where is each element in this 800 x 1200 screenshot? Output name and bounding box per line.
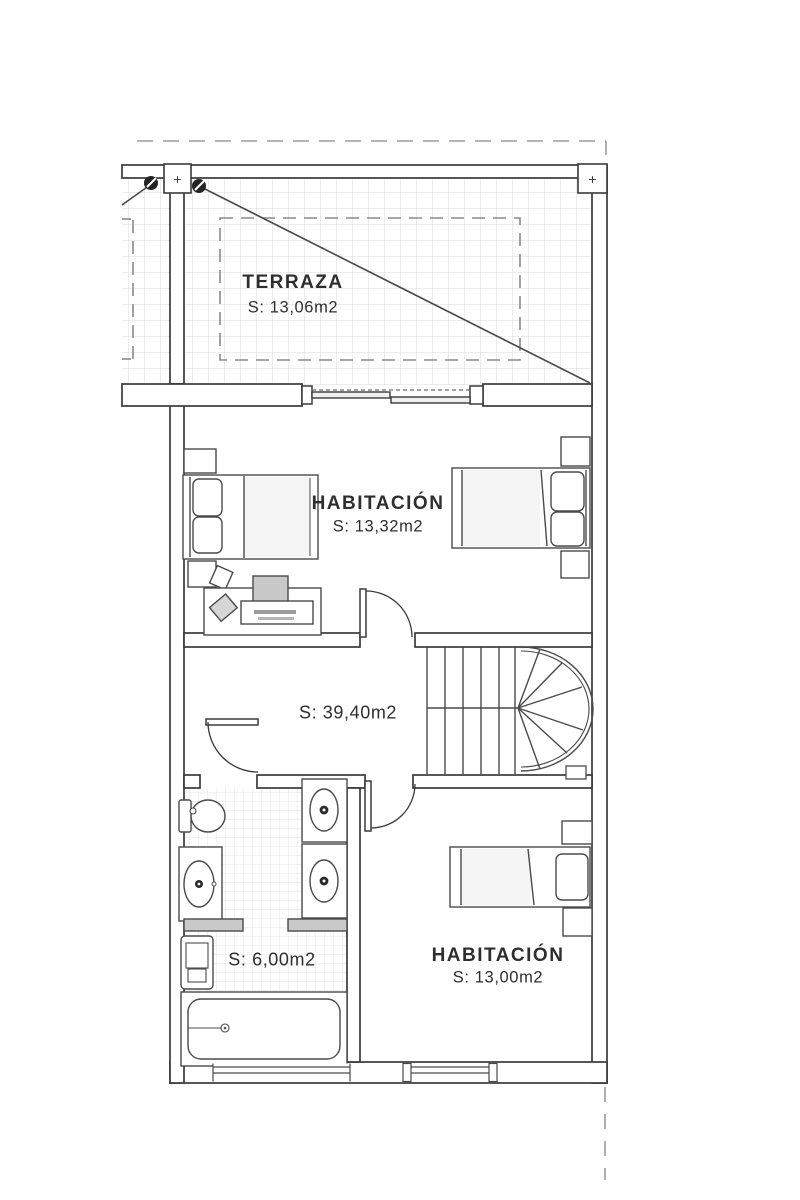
nightstand — [563, 908, 592, 936]
bedroom-1-area-label: S: 13,32m2 — [333, 518, 423, 537]
floor-plan-svg: + + — [0, 0, 800, 1200]
column-marker-right: + — [578, 164, 607, 193]
column-plus-icon: + — [588, 171, 596, 187]
desk-chair — [188, 561, 233, 590]
column-marker-left: + — [164, 164, 191, 193]
door-bedroom-2 — [365, 781, 415, 831]
bedroom-2-furniture — [450, 821, 592, 936]
nightstand — [184, 449, 216, 473]
sink-right-bottom — [302, 844, 347, 918]
window-bathroom — [213, 1064, 350, 1082]
bed — [183, 475, 318, 559]
washing-machine — [181, 936, 213, 989]
bed — [450, 847, 590, 907]
sliding-door — [302, 386, 483, 404]
bedroom-2-label: HABITACIÓN — [432, 945, 565, 967]
terrace-area-label: S: 13,06m2 — [248, 299, 338, 318]
hall-area-label: S: 39,40m2 — [299, 703, 397, 724]
column-plus-icon: + — [173, 171, 181, 187]
toilet — [179, 800, 225, 832]
sink-right-top — [302, 779, 347, 842]
bed — [452, 468, 590, 548]
door-bathroom — [206, 719, 258, 772]
bathroom-area-label: S: 6,00m2 — [228, 950, 315, 971]
door-bedroom-1 — [360, 589, 412, 637]
nightstand — [561, 551, 589, 578]
spiral-staircase — [427, 647, 593, 779]
floor-plan-page: + + — [0, 0, 800, 1200]
bathtub — [181, 992, 347, 1066]
window-bedroom-2 — [403, 1064, 497, 1082]
nightstand — [561, 437, 590, 466]
terrace-floor-tiles — [122, 178, 592, 385]
sink-left — [179, 847, 222, 921]
terrace-label: TERRAZA — [242, 272, 343, 294]
bedroom-2-area-label: S: 13,00m2 — [453, 969, 543, 988]
nightstand — [562, 821, 592, 844]
bedroom-1-label: HABITACIÓN — [312, 493, 445, 515]
